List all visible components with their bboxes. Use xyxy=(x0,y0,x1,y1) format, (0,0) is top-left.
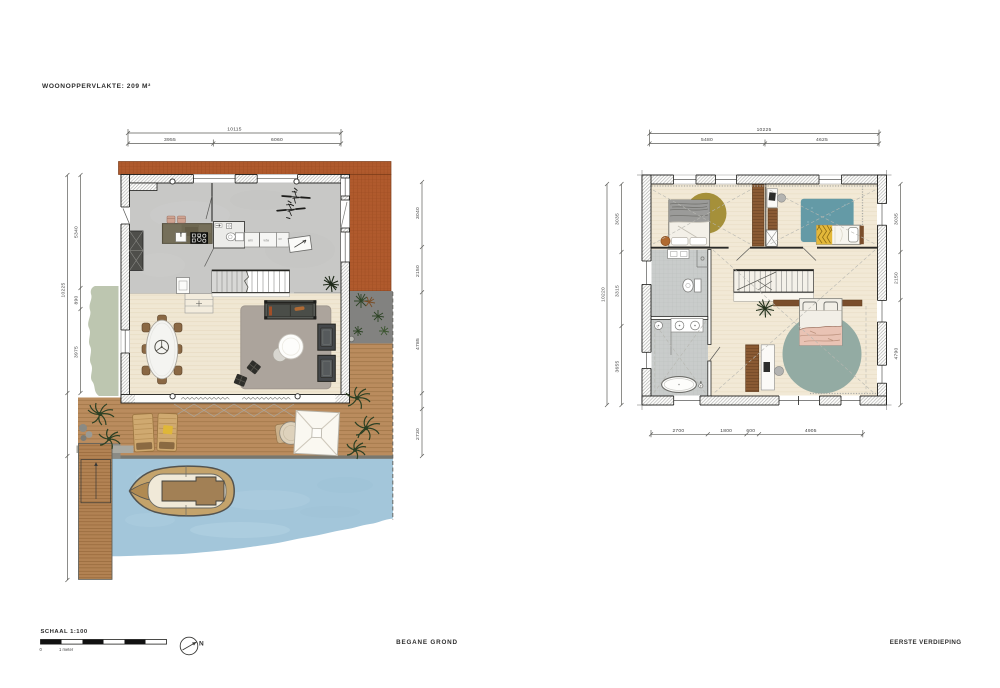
svg-text:wtw: wtw xyxy=(264,239,270,243)
svg-text:3975: 3975 xyxy=(74,346,80,358)
svg-text:6060: 6060 xyxy=(271,137,283,143)
svg-text:2150: 2150 xyxy=(894,272,900,284)
svg-text:10225: 10225 xyxy=(61,283,67,298)
svg-text:10225: 10225 xyxy=(757,127,772,133)
svg-text:600: 600 xyxy=(746,428,755,434)
svg-text:N: N xyxy=(199,641,204,648)
svg-text:1 meter: 1 meter xyxy=(59,647,74,652)
svg-text:1800: 1800 xyxy=(720,428,732,434)
svg-text:3040: 3040 xyxy=(415,207,421,219)
svg-text:2730: 2730 xyxy=(415,428,421,440)
svg-text:4625: 4625 xyxy=(816,137,828,143)
svg-text:SCHAAL 1:100: SCHAAL 1:100 xyxy=(41,629,88,635)
svg-text:2150: 2150 xyxy=(415,265,421,277)
svg-text:5340: 5340 xyxy=(74,226,80,238)
svg-text:10220: 10220 xyxy=(601,287,607,302)
svg-text:2700: 2700 xyxy=(672,428,684,434)
svg-text:3955: 3955 xyxy=(164,137,176,143)
svg-text:4785: 4785 xyxy=(415,338,421,350)
svg-text:wm: wm xyxy=(248,239,253,243)
svg-text:WOONOPPERVLAKTE: 209 M²: WOONOPPERVLAKTE: 209 M² xyxy=(42,83,151,90)
svg-text:890: 890 xyxy=(74,296,80,305)
svg-text:3315: 3315 xyxy=(615,285,621,297)
svg-text:3035: 3035 xyxy=(615,213,621,225)
svg-text:EERSTE VERDIEPING: EERSTE VERDIEPING xyxy=(890,639,962,646)
svg-text:cv: cv xyxy=(279,237,283,241)
svg-text:5480: 5480 xyxy=(701,137,713,143)
svg-text:10115: 10115 xyxy=(227,127,242,133)
svg-text:3035: 3035 xyxy=(894,213,900,225)
svg-text:3655: 3655 xyxy=(615,361,621,373)
svg-text:4790: 4790 xyxy=(894,348,900,360)
svg-text:BEGANE GROND: BEGANE GROND xyxy=(396,639,458,646)
svg-text:4905: 4905 xyxy=(805,428,817,434)
